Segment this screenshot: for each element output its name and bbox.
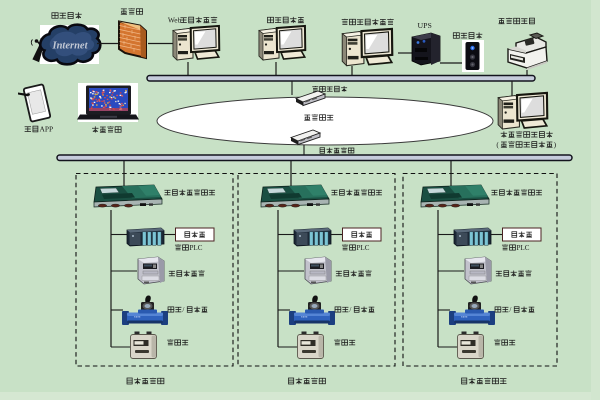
svg-text:****: **** — [301, 315, 308, 320]
svg-text:/: / — [349, 306, 351, 314]
svg-text:PLC: PLC — [356, 244, 369, 252]
svg-text:Web: Web — [168, 16, 182, 25]
svg-text:UPS: UPS — [418, 21, 432, 30]
svg-text:APP: APP — [40, 125, 54, 134]
svg-text:****: **** — [461, 315, 468, 320]
svg-text:****: **** — [134, 315, 141, 320]
svg-text:Internet: Internet — [51, 41, 88, 52]
svg-text:/: / — [509, 306, 511, 314]
svg-text:PLC: PLC — [189, 244, 202, 252]
svg-text:/: / — [182, 306, 184, 314]
svg-text:PLC: PLC — [516, 244, 529, 252]
